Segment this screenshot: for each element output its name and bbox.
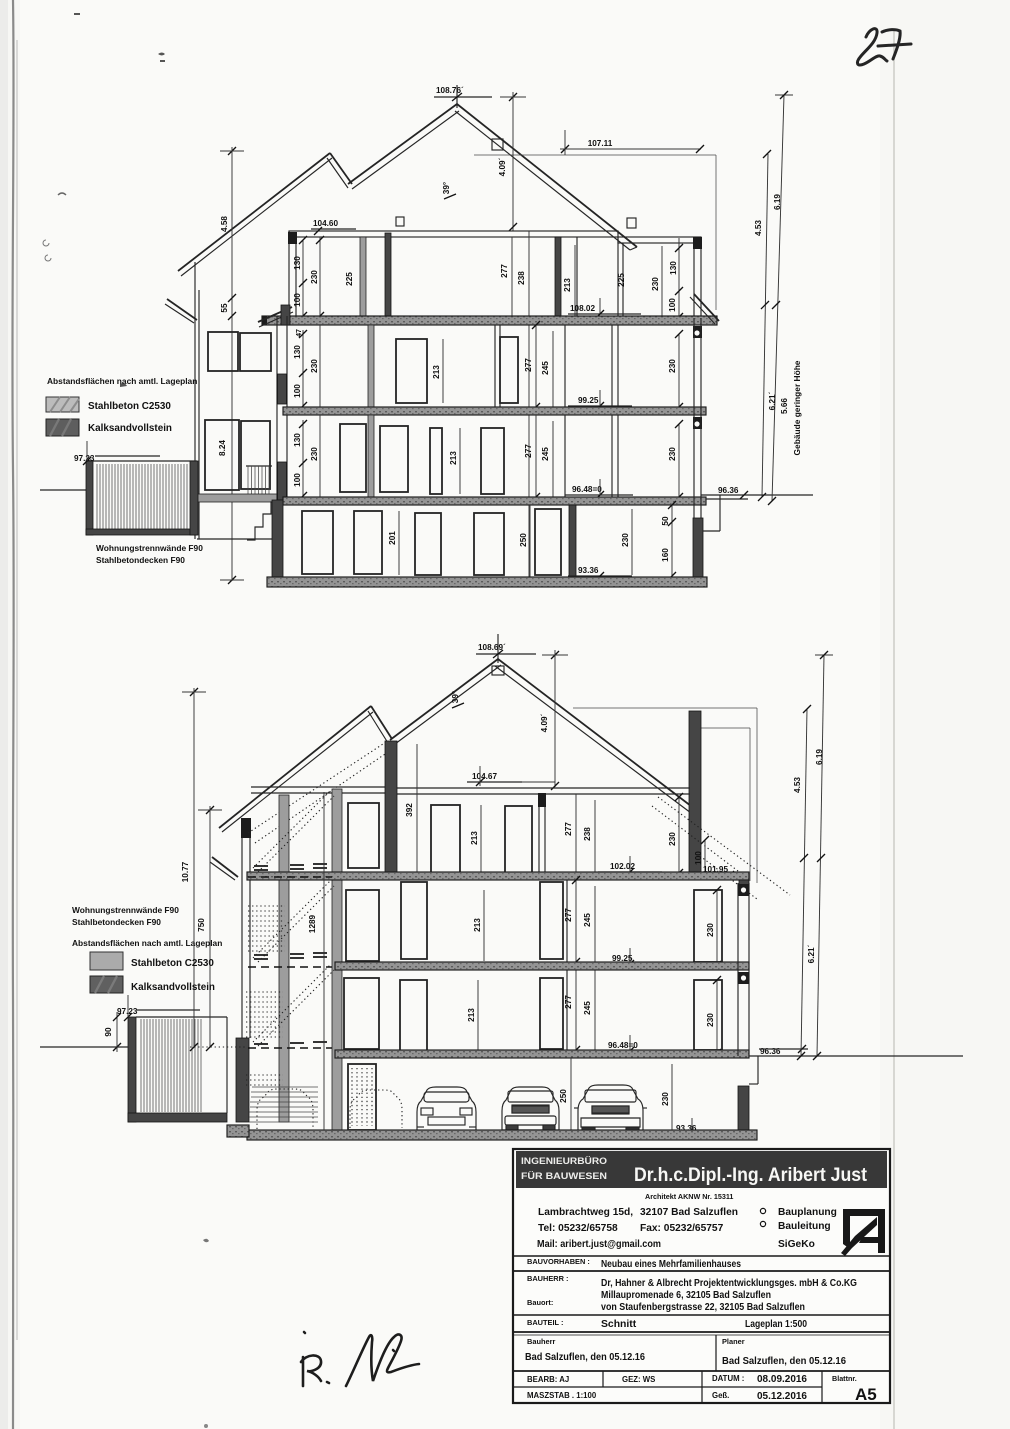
svg-text:Bauplanung: Bauplanung xyxy=(778,1207,837,1218)
svg-text:Dr, Hahner & Albrecht Projekte: Dr, Hahner & Albrecht Projektentwicklung… xyxy=(601,1278,857,1289)
svg-text:Dr.h.c.Dipl.-Ing. Aribert Just: Dr.h.c.Dipl.-Ing. Aribert Just xyxy=(634,1165,868,1186)
svg-text:99.25: 99.25 xyxy=(578,396,599,405)
svg-text:Stahlbeton C2530: Stahlbeton C2530 xyxy=(131,958,214,969)
svg-text:130: 130 xyxy=(293,345,302,359)
svg-text:245: 245 xyxy=(583,913,592,927)
svg-text:100: 100 xyxy=(293,473,302,487)
svg-text:Stahlbeton C2530: Stahlbeton C2530 xyxy=(88,401,171,412)
svg-text:250: 250 xyxy=(519,533,528,547)
svg-text:DATUM :: DATUM : xyxy=(712,1374,744,1383)
svg-text:Fax: 05232/65757: Fax: 05232/65757 xyxy=(640,1223,724,1234)
svg-text:108.76´: 108.76´ xyxy=(436,86,464,95)
svg-text:230: 230 xyxy=(310,270,319,284)
svg-text:Bauort:: Bauort: xyxy=(527,1298,553,1307)
svg-text:230: 230 xyxy=(651,277,660,291)
svg-text:Mail: aribert.just@gmail.com: Mail: aribert.just@gmail.com xyxy=(537,1239,661,1250)
svg-text:108.02: 108.02 xyxy=(570,304,595,313)
svg-text:230: 230 xyxy=(706,923,715,937)
svg-text:213: 213 xyxy=(473,918,482,932)
svg-text:MASZSTAB . 1:100: MASZSTAB . 1:100 xyxy=(527,1391,597,1400)
svg-text:Stahlbetondecken F90: Stahlbetondecken F90 xyxy=(96,555,185,565)
svg-text:245: 245 xyxy=(541,361,550,375)
svg-text:93.36: 93.36 xyxy=(578,566,599,575)
svg-text:4.53: 4.53 xyxy=(754,220,763,236)
svg-text:55: 55 xyxy=(220,303,229,313)
svg-text:230: 230 xyxy=(310,359,319,373)
svg-text:Wohnungstrennwände F90: Wohnungstrennwände F90 xyxy=(72,905,179,915)
svg-text:INGENIEURBÜRO: INGENIEURBÜRO xyxy=(521,1156,608,1167)
svg-text:277: 277 xyxy=(564,908,573,922)
svg-text:50: 50 xyxy=(661,516,670,526)
svg-text:BAUHERR :: BAUHERR : xyxy=(527,1274,568,1283)
svg-text:245: 245 xyxy=(583,1001,592,1015)
svg-text:Geß.: Geß. xyxy=(712,1391,729,1400)
svg-text:107.11: 107.11 xyxy=(588,139,613,148)
svg-text:277: 277 xyxy=(564,822,573,836)
svg-text:238: 238 xyxy=(517,271,526,285)
svg-text:Bauherr: Bauherr xyxy=(527,1337,555,1346)
svg-text:BAUTEIL :: BAUTEIL : xyxy=(527,1318,563,1327)
svg-text:96.48=0: 96.48=0 xyxy=(572,485,602,494)
svg-text:104.67: 104.67 xyxy=(472,772,497,781)
svg-text:96.36: 96.36 xyxy=(760,1047,781,1056)
svg-text:Tel: 05232/65758: Tel: 05232/65758 xyxy=(538,1223,618,1234)
svg-text:230: 230 xyxy=(621,533,630,547)
svg-text:1289: 1289 xyxy=(308,914,317,933)
svg-text:Lageplan 1:500: Lageplan 1:500 xyxy=(745,1319,807,1330)
svg-text:97.23: 97.23 xyxy=(74,454,95,463)
svg-text:277: 277 xyxy=(564,995,573,1009)
svg-text:10.77: 10.77 xyxy=(181,861,190,882)
svg-text:BAUVORHABEN :: BAUVORHABEN : xyxy=(527,1257,590,1266)
svg-text:6.21´: 6.21´ xyxy=(768,391,777,410)
svg-text:100: 100 xyxy=(293,384,302,398)
svg-text:6.19: 6.19 xyxy=(773,194,782,210)
svg-text:GEZ: WS: GEZ: WS xyxy=(622,1375,655,1384)
svg-text:Schnitt: Schnitt xyxy=(601,1319,637,1330)
svg-text:von Staufenbergstrasse 22, 321: von Staufenbergstrasse 22, 32105 Bad Sal… xyxy=(601,1302,805,1313)
svg-text:213: 213 xyxy=(563,278,572,292)
svg-text:100: 100 xyxy=(293,293,302,307)
svg-text:Bad Salzuflen, den 05.12.16: Bad Salzuflen, den 05.12.16 xyxy=(722,1356,846,1367)
svg-text:Abstandsflächen nach amtl. Lag: Abstandsflächen nach amtl. Lageplan xyxy=(47,376,197,386)
svg-text:39°: 39° xyxy=(442,182,451,194)
svg-text:Neubau eines Mehrfamilienhause: Neubau eines Mehrfamilienhauses xyxy=(601,1259,741,1270)
svg-text:213: 213 xyxy=(432,365,441,379)
svg-text:213: 213 xyxy=(467,1008,476,1022)
svg-text:BEARB: AJ: BEARB: AJ xyxy=(527,1375,569,1384)
svg-text:238: 238 xyxy=(583,827,592,841)
svg-text:100: 100 xyxy=(668,298,677,312)
svg-text:Bad Salzuflen, den 05.12.16: Bad Salzuflen, den 05.12.16 xyxy=(525,1352,645,1363)
svg-text:8.24: 8.24 xyxy=(218,440,227,456)
svg-text:47: 47 xyxy=(296,329,303,337)
svg-text:A5: A5 xyxy=(855,1385,877,1404)
svg-text:Blattnr.: Blattnr. xyxy=(832,1374,857,1383)
svg-text:230: 230 xyxy=(706,1013,715,1027)
svg-text:Planer: Planer xyxy=(722,1337,745,1346)
svg-text:90: 90 xyxy=(104,1027,113,1037)
svg-text:4.09´: 4.09´ xyxy=(540,713,549,732)
svg-text:FÜR BAUWESEN: FÜR BAUWESEN xyxy=(521,1171,607,1182)
svg-text:277: 277 xyxy=(500,264,509,278)
svg-text:Gebäude geringer Höhe: Gebäude geringer Höhe xyxy=(792,360,802,455)
svg-text:Kalksandvollstein: Kalksandvollstein xyxy=(88,423,172,434)
svg-text:225: 225 xyxy=(345,272,354,286)
svg-text:277: 277 xyxy=(524,444,533,458)
svg-text:230: 230 xyxy=(668,359,677,373)
svg-text:96.36: 96.36 xyxy=(718,486,739,495)
svg-text:Millaupromenade 6, 32105 Bad S: Millaupromenade 6, 32105 Bad Salzuflen xyxy=(601,1290,771,1301)
svg-text:130: 130 xyxy=(669,261,678,275)
svg-text:96.48=0: 96.48=0 xyxy=(608,1041,638,1050)
svg-text:Abstandsflächen nach amtl. Lag: Abstandsflächen nach amtl. Lageplan xyxy=(72,938,222,948)
svg-text:Kalksandvollstein: Kalksandvollstein xyxy=(131,982,215,993)
svg-text:130: 130 xyxy=(293,433,302,447)
svg-text:4.58: 4.58 xyxy=(220,216,229,232)
svg-text:6.21´: 6.21´ xyxy=(807,944,816,963)
svg-text:201: 201 xyxy=(388,531,397,545)
svg-text:213: 213 xyxy=(470,831,479,845)
svg-text:100: 100 xyxy=(694,851,703,865)
svg-text:277: 277 xyxy=(524,358,533,372)
svg-text:05.12.2016: 05.12.2016 xyxy=(757,1391,807,1402)
svg-text:6.19: 6.19 xyxy=(815,749,824,765)
svg-text:230: 230 xyxy=(668,447,677,461)
svg-text:4.09´: 4.09´ xyxy=(498,157,507,176)
svg-text:230: 230 xyxy=(661,1092,670,1106)
svg-text:213: 213 xyxy=(449,451,458,465)
svg-text:250: 250 xyxy=(559,1089,568,1103)
svg-text:Lambrachtweg 15d,: Lambrachtweg 15d, xyxy=(538,1207,633,1218)
svg-text:230: 230 xyxy=(310,447,319,461)
svg-text:750: 750 xyxy=(197,918,206,932)
svg-text:230: 230 xyxy=(668,832,677,846)
svg-text:SiGeKo: SiGeKo xyxy=(778,1239,815,1250)
svg-text:Architekt AKNW Nr. 15311: Architekt AKNW Nr. 15311 xyxy=(645,1192,733,1201)
svg-text:32107 Bad Salzuflen: 32107 Bad Salzuflen xyxy=(640,1207,738,1218)
svg-text:225: 225 xyxy=(617,273,626,287)
svg-text:104.60: 104.60 xyxy=(313,219,338,228)
svg-text:Bauleitung: Bauleitung xyxy=(778,1221,831,1232)
svg-text:4.53: 4.53 xyxy=(793,777,802,793)
svg-text:39°: 39° xyxy=(451,691,460,703)
svg-text:160: 160 xyxy=(661,548,670,562)
svg-text:Wohnungstrennwände F90: Wohnungstrennwände F90 xyxy=(96,543,203,553)
svg-text:245: 245 xyxy=(541,447,550,461)
svg-text:130: 130 xyxy=(293,256,302,270)
svg-text:5.66: 5.66 xyxy=(780,398,789,414)
svg-text:Stahlbetondecken F90: Stahlbetondecken F90 xyxy=(72,917,161,927)
svg-text:08.09.2016: 08.09.2016 xyxy=(757,1374,807,1385)
svg-text:392: 392 xyxy=(405,803,414,817)
